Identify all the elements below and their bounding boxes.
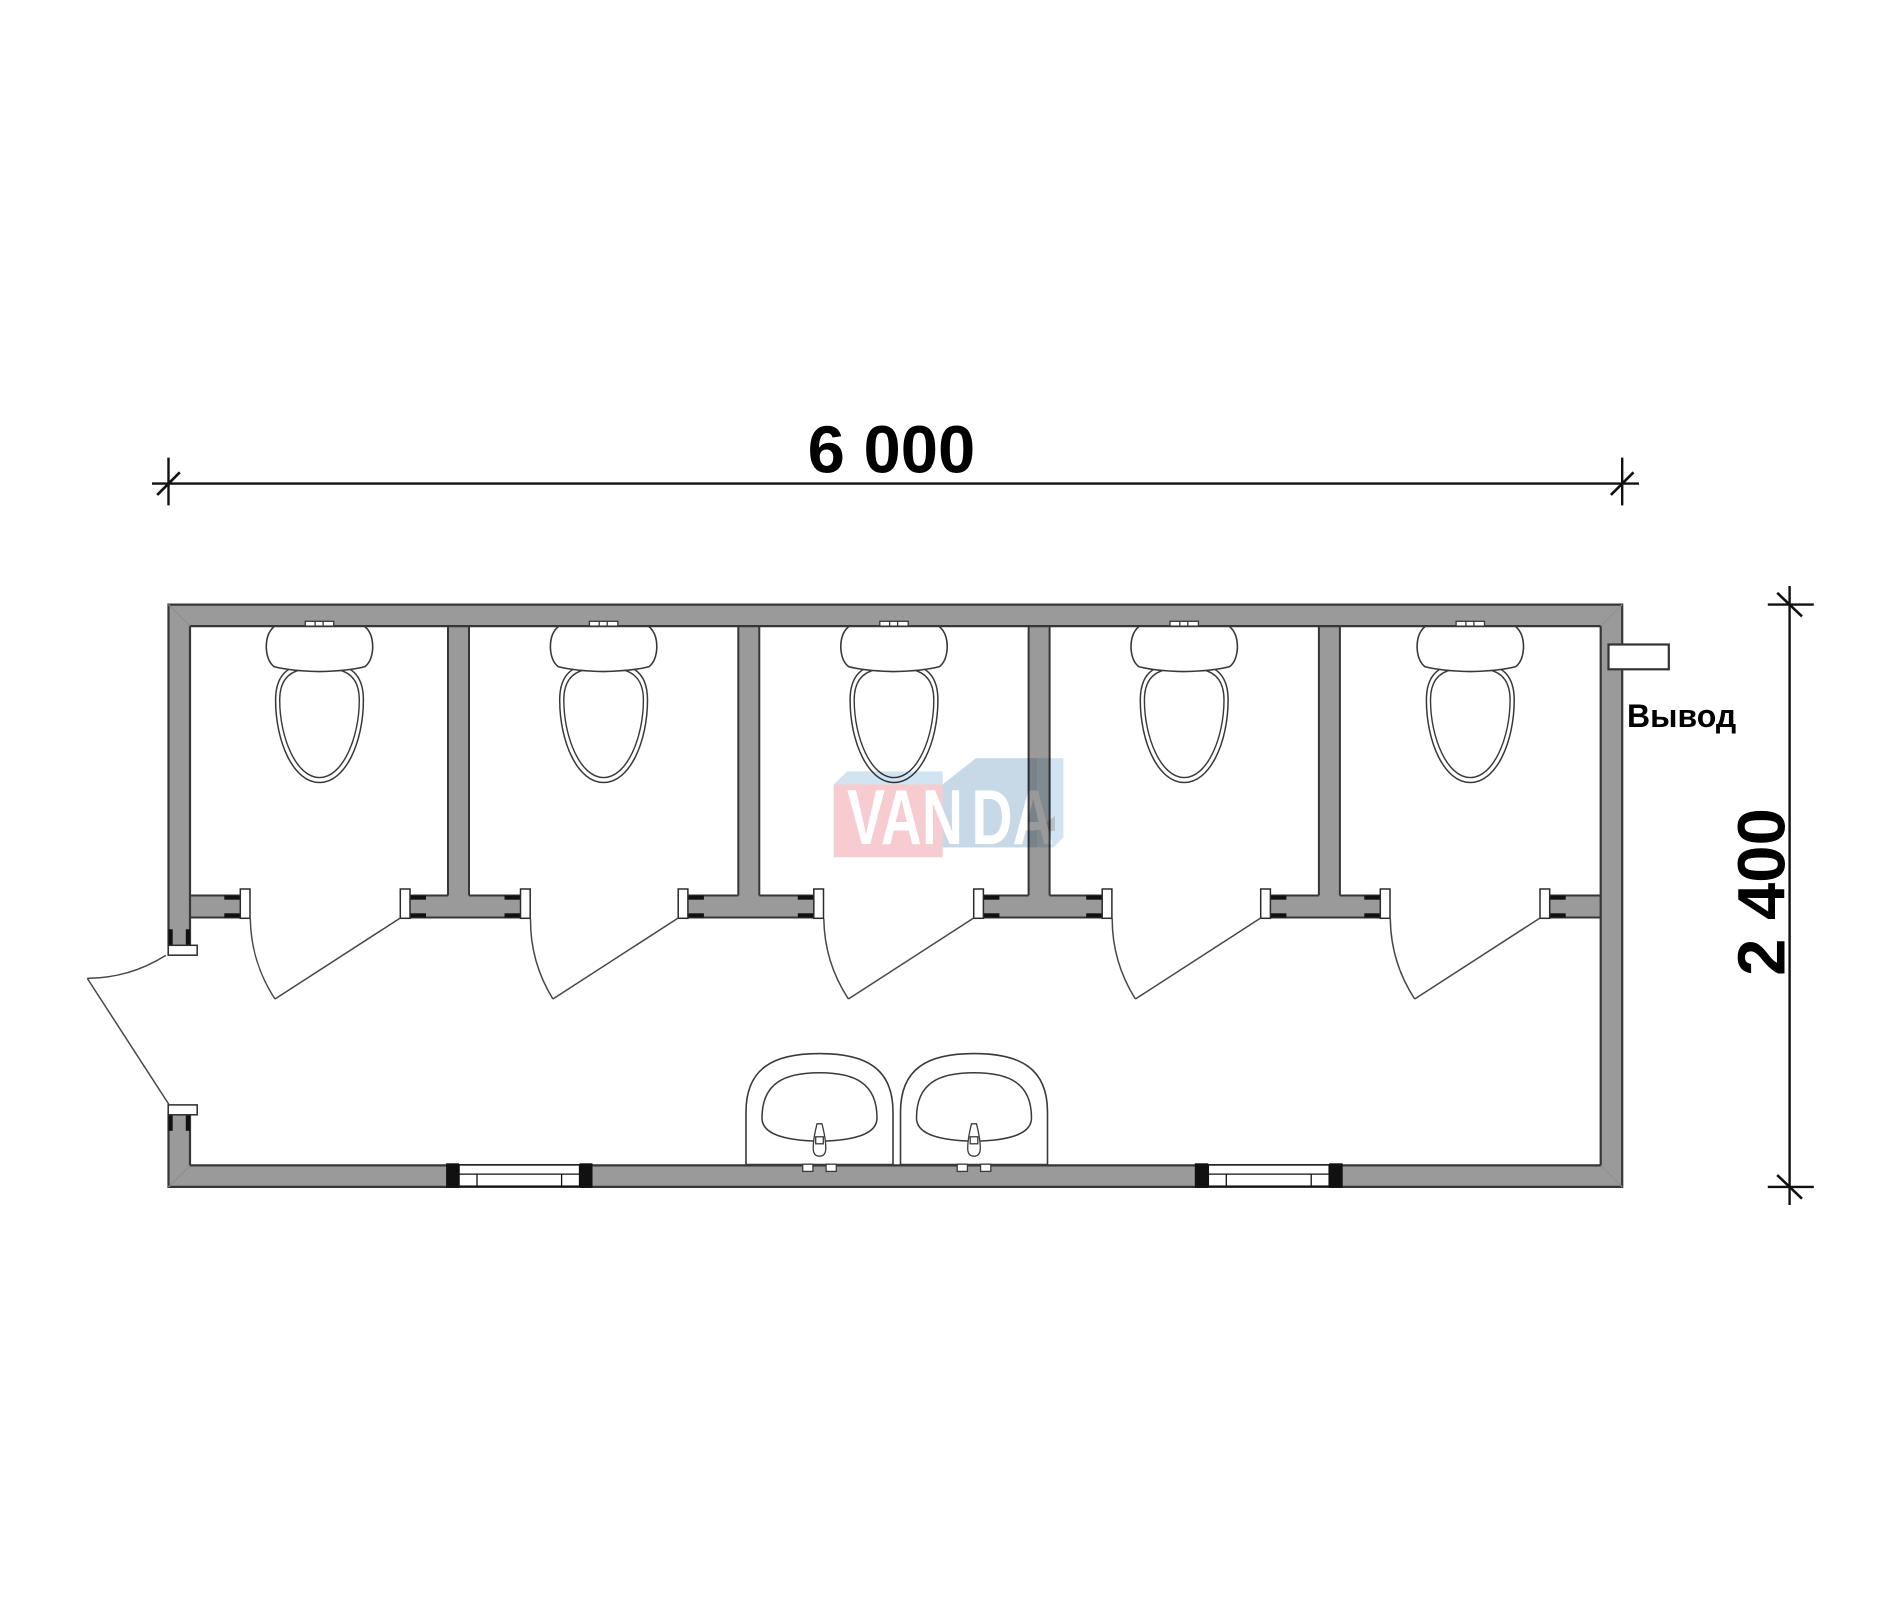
svg-text:Вывод: Вывод — [1627, 698, 1736, 734]
svg-text:6 000: 6 000 — [808, 413, 976, 488]
svg-text:2 400: 2 400 — [1725, 808, 1800, 976]
